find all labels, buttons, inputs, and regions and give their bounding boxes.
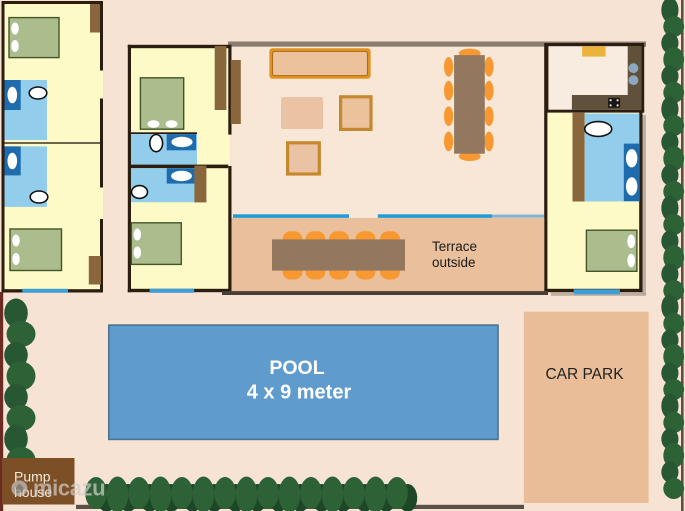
svg-text:CAR PARK: CAR PARK — [545, 366, 624, 383]
svg-text:outside: outside — [432, 255, 476, 270]
svg-text:4 x 9 meter: 4 x 9 meter — [247, 382, 352, 404]
svg-text:Terrace: Terrace — [432, 239, 477, 254]
svg-text:POOL: POOL — [269, 357, 324, 379]
svg-text:micazu: micazu — [33, 476, 105, 501]
